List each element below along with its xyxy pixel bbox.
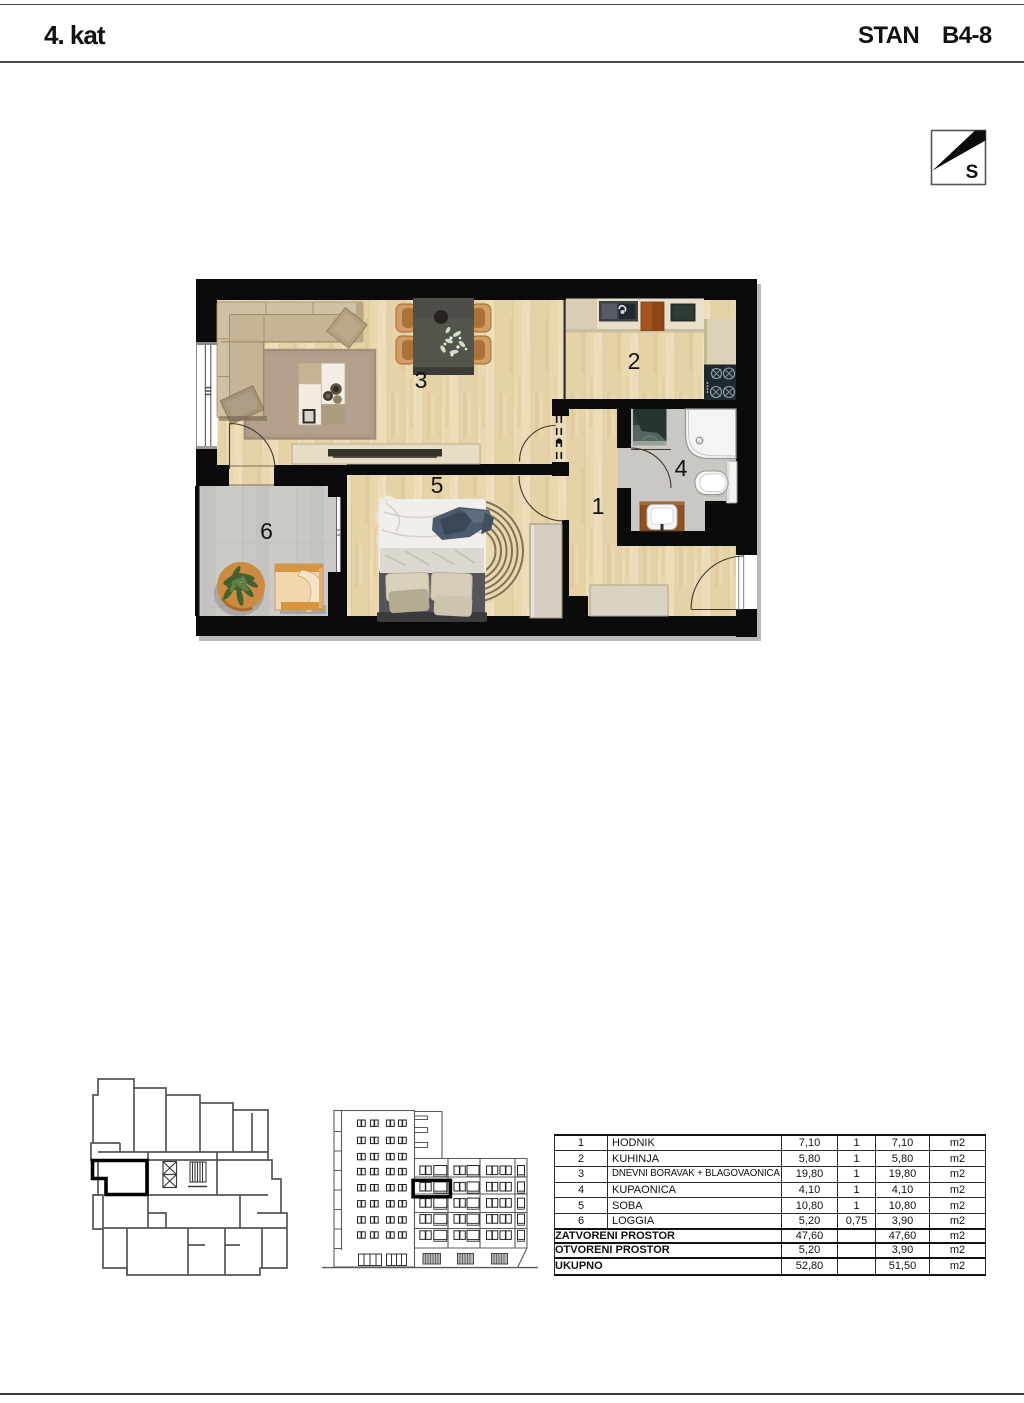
svg-text:4: 4: [675, 455, 688, 481]
svg-text:S: S: [966, 162, 979, 183]
svg-text:3: 3: [415, 367, 428, 393]
svg-text:2: 2: [628, 348, 641, 374]
svg-text:5: 5: [431, 472, 444, 498]
svg-text:1: 1: [592, 493, 605, 519]
svg-text:6: 6: [260, 518, 273, 544]
